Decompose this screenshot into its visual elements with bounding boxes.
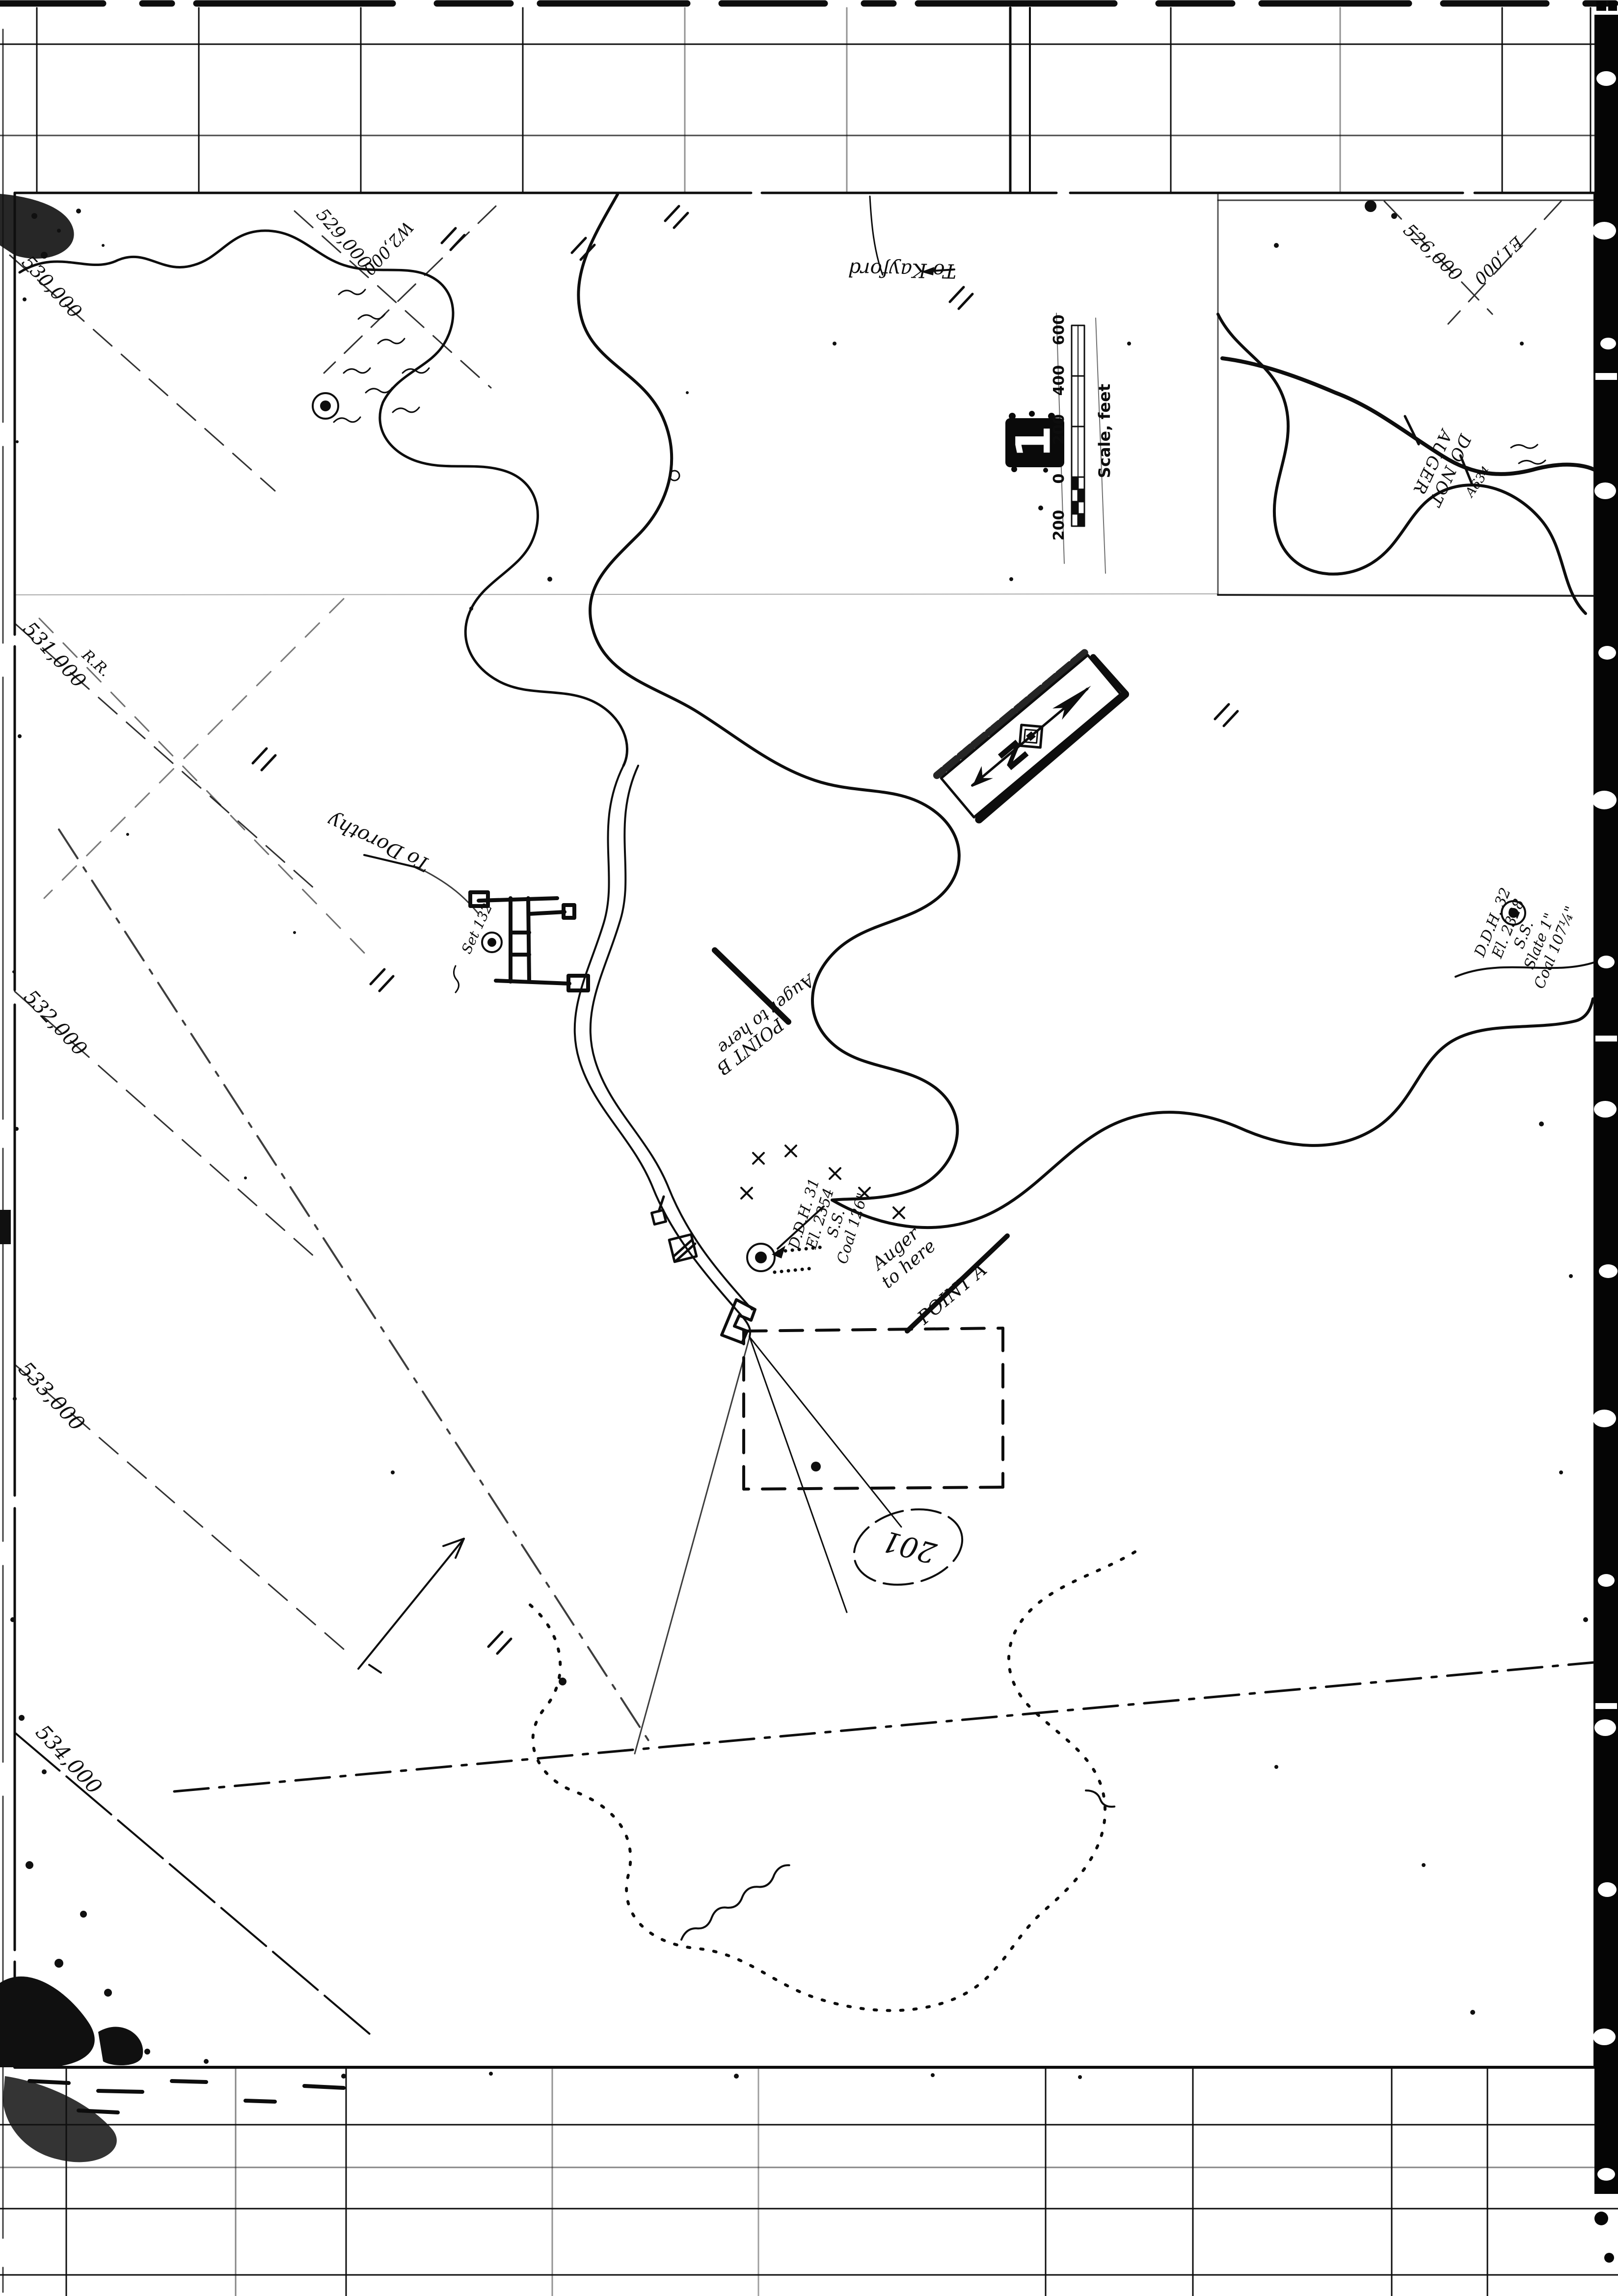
route-label-kayford: To Kayford [848,257,956,281]
scale-tick-200-left: 200 [1051,510,1068,541]
film-strip-edge [1592,1,1618,2263]
scale-tick-0: 0 [1051,474,1068,484]
scale-tick-400: 400 [1051,365,1068,396]
map-linework [0,0,1618,2296]
scanned-map-sheet: 530,000 531,000 532,000 533,000 534,000 … [0,0,1618,2296]
scale-tick-600: 600 [1051,315,1068,346]
film-frame-number: 1 [1007,426,1060,458]
scale-bar-title: Scale, feet [1096,384,1113,478]
